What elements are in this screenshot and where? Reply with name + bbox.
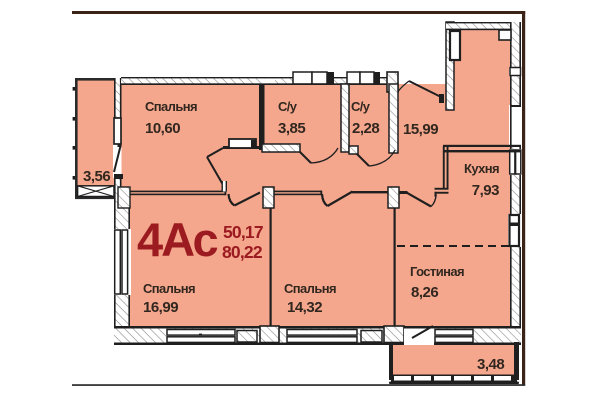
svg-text:14,32: 14,32	[287, 299, 322, 316]
svg-text:Спальня: Спальня	[143, 281, 195, 296]
svg-text:Гостиная: Гостиная	[410, 264, 464, 279]
svg-text:3,56: 3,56	[83, 168, 110, 185]
svg-text:3,48: 3,48	[477, 356, 504, 373]
svg-text:15,99: 15,99	[403, 121, 438, 138]
svg-text:80,22: 80,22	[222, 242, 263, 262]
svg-text:С/у: С/у	[351, 99, 371, 114]
svg-text:2,28: 2,28	[352, 120, 379, 137]
svg-text:Спальня: Спальня	[145, 99, 197, 114]
svg-text:3,85: 3,85	[278, 120, 305, 137]
svg-text:Спальня: Спальня	[284, 281, 336, 296]
svg-text:16,99: 16,99	[143, 299, 178, 316]
svg-text:10,60: 10,60	[145, 120, 180, 137]
svg-text:4Ас: 4Ас	[137, 213, 217, 266]
svg-text:Кухня: Кухня	[464, 161, 499, 176]
svg-text:7,93: 7,93	[472, 182, 499, 199]
svg-text:С/у: С/у	[278, 99, 298, 114]
svg-text:8,26: 8,26	[411, 284, 438, 301]
svg-text:50,17: 50,17	[223, 222, 263, 242]
